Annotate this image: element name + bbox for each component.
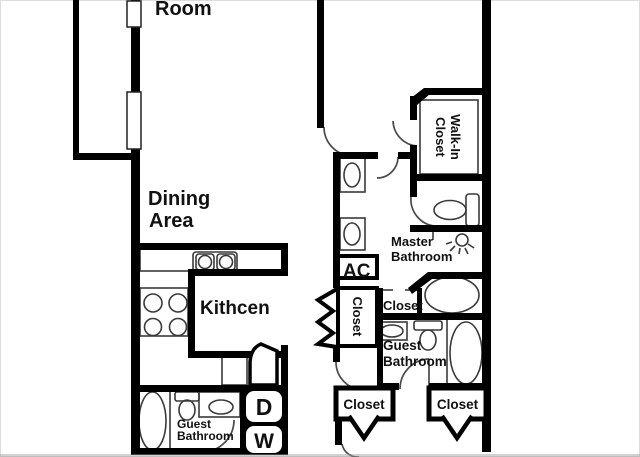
toilet-room-bottom-wall [410,225,482,232]
toilet-tank [414,321,442,330]
window-upper [127,1,141,27]
floor-plan-drawing: Room Dining Area Kithcen Guest Bathroom … [0,0,640,457]
window-lower [127,92,141,149]
label-master-bath-2: Bathroom [391,249,452,264]
label-ac: AC [343,261,371,282]
label-walkin-1: Walk-In [448,114,463,160]
label-washer: W [254,430,274,453]
label-guest-bath-left-2: Bathroom [177,429,234,443]
label-dining-2: Area [149,210,194,232]
label-kitchen: Kithcen [200,298,270,319]
walkin-closet-door-arc [393,121,417,146]
patio-bottom-wall [73,153,140,160]
master-bath-top-wall-a [333,152,378,159]
bedroom-closets [336,388,486,438]
toilet-room-wall-stub [410,181,417,197]
kitchen-inner-wall [188,269,288,276]
burner [144,294,162,312]
door-arcs [202,121,434,457]
toilet-room-door-arc [411,197,434,226]
label-master-closet: Closet [383,298,423,313]
burner [170,319,187,336]
label-closet-right: Closet [437,397,479,412]
toilet-tank [466,194,479,226]
kitchen-side-wall [188,269,195,358]
patio-left-wall [73,0,79,160]
entry-landing [222,357,247,385]
bathtub [450,322,482,384]
toilet-bowl [420,330,436,350]
sink [209,400,233,414]
floor-plan-page: Room Dining Area Kithcen Guest Bathroom … [0,0,640,457]
label-master-bath-1: Master [391,234,433,249]
label-closet-left: Closet [343,397,385,412]
label-hall-closet: Closet [350,297,365,337]
label-guest-bath-right-2: Bathroom [383,354,447,369]
label-living-room: Room [155,0,212,20]
accordion-door [318,289,337,347]
label-walkin-2: Closet [433,117,448,157]
sink [344,163,360,187]
burner [169,294,187,312]
label-guest-bath-right-1: Guest [383,338,422,353]
master-bath-door-arc [377,157,398,178]
entry-door-leaf [250,344,277,385]
kitchen-fixtures [140,248,282,336]
bathtub [139,392,166,450]
label-dryer: D [256,394,273,420]
unit-right-wall [482,0,491,452]
master-bath-bottom-wall [377,313,482,320]
label-walkin-closet: Walk-In Closet [433,114,463,160]
center-wall [317,0,324,128]
label-dining-1: Dining [148,188,210,210]
living-room-door-arc [324,127,353,156]
toilet-bowl [434,201,466,220]
kitchen-top-wall [140,243,288,250]
burner [145,319,162,336]
walkin-bottom-wall [410,174,482,181]
sink [344,223,360,245]
walkin-top-wall [424,88,482,95]
garden-tub [425,277,479,313]
sink [381,325,403,337]
